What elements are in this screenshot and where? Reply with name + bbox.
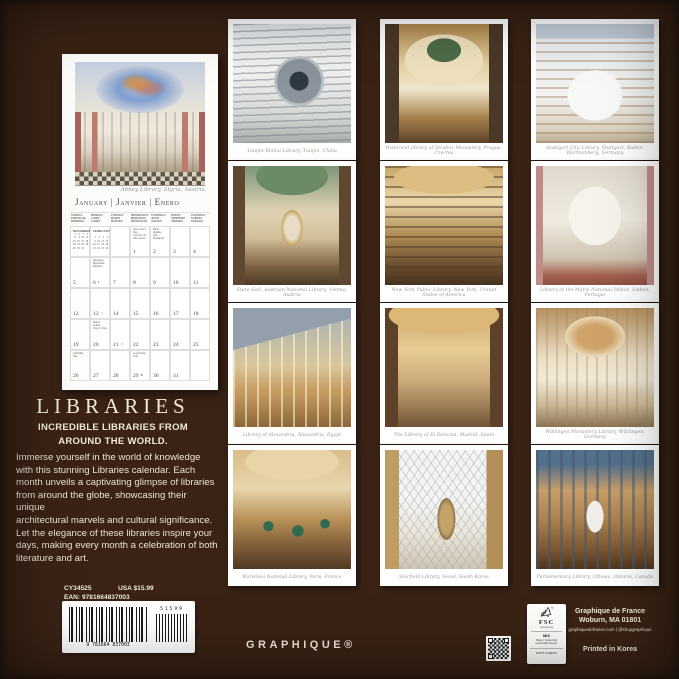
thumbnail-caption: State Hall, Austrian National Library, V… [233, 285, 351, 301]
thumbnail-card: Historical library of Strahov Monastery,… [380, 19, 508, 160]
calendar-cell: 31 [170, 350, 190, 381]
thumbnail-caption: Richelieu National Library, Paris, Franc… [233, 569, 351, 585]
calendar-cell: 28 [110, 350, 130, 381]
calendar-back-cover: Abbey Library, Styria, Austria January |… [0, 0, 679, 679]
calendar-cell: 14 [110, 288, 130, 319]
calendar-cell: 18 [190, 288, 210, 319]
price: USA $15.99 [118, 585, 154, 592]
barcode-supplement-digits: 51599 [156, 607, 188, 612]
calendar-cell: Lunar New Year29● [130, 350, 150, 381]
photo-new-york-public-library [385, 166, 503, 285]
calendar-cell: 21◑ [110, 319, 130, 350]
thumbnail-card: Tianjin Binhai Library, Tianjin, China [228, 19, 356, 160]
thumbnail-card: Library of Alexandria, Alexandria, Egypt [228, 303, 356, 444]
barcode-digits: 9 781664 837003 [66, 643, 150, 648]
thumbnail-caption: Stuttgart City Library, Stuttgart, Baden… [536, 143, 654, 159]
barcode: 9 781664 837003 51599 [62, 601, 195, 653]
qr-finder-icon [504, 638, 509, 643]
photo-el-escorial-library [385, 308, 503, 427]
weekday-header: SUNDAY DIMANCHE DOMINGO [70, 213, 90, 226]
calendar-cell: Martin Luther King Jr. Day20 [90, 319, 110, 350]
thumbnail-card: State Hall, Austrian National Library, V… [228, 161, 356, 302]
calendar-photo-caption: Abbey Library, Styria, Austria [121, 187, 205, 193]
fresco-figures-graphic [114, 72, 166, 99]
thumbnail-card: Richelieu National Library, Paris, Franc… [228, 445, 356, 586]
columns-graphic [75, 112, 205, 173]
thumbnail-card: Library of the Mafra National Palace, Li… [531, 161, 659, 302]
calendar-cell: Epiphany Épiphanie Epifanía6◐ [90, 257, 110, 288]
calendar-cell: 27 [90, 350, 110, 381]
thumbnail-caption: Library of the Mafra National Palace, Li… [536, 285, 654, 301]
weekday-header: SATURDAY SAMEDI SÁBADO [190, 213, 210, 226]
qr-finder-icon [488, 654, 493, 659]
thumbnail-card: Stuttgart City Library, Stuttgart, Baden… [531, 19, 659, 160]
thumbnail-card: New York Public Library, New York, Unite… [380, 161, 508, 302]
calendar-cell: 25 [190, 319, 210, 350]
ean-code: EAN: 9781664837003 [64, 594, 130, 601]
weekday-header: THURSDAY JEUDI JUEVES [150, 213, 170, 226]
calendar-cell: 23 [150, 319, 170, 350]
thumbnail-card: Parliamentary Library, Ottawa, Ontario, … [531, 445, 659, 586]
calendar-grid: SUNDAY DIMANCHE DOMINGO MONDAY LUNDI LUN… [70, 212, 210, 381]
calendar-cell: 12 [70, 288, 90, 319]
photo-mafra-palace-library [536, 166, 654, 285]
photo-parliamentary-library-ottawa [536, 450, 654, 569]
photo-starfield-library [385, 450, 503, 569]
calendar-cell: 22 [130, 319, 150, 350]
calendar-cell: Bank Holiday (UK—Scotland)2 [150, 226, 170, 257]
photo-austrian-national-library [233, 166, 351, 285]
calendar-cell: 5 [70, 257, 90, 288]
calendar-cell: 7 [110, 257, 130, 288]
product-subtitle: INCREDIBLE LIBRARIES FROM AROUND THE WOR… [8, 421, 218, 449]
photo-richelieu-national-library [233, 450, 351, 569]
product-title: LIBRARIES [8, 394, 218, 419]
photo-admont-abbey-library [75, 62, 205, 186]
calendar-cell: 10 [170, 257, 190, 288]
qr-code [486, 636, 511, 661]
calendar-cell: 17 [170, 288, 190, 319]
thumbnail-caption: Parliamentary Library, Ottawa, Ontario, … [536, 569, 654, 585]
calendar-cell: New Year's Day Jour de l'An Año Nuevo1 [130, 226, 150, 257]
weekday-header: FRIDAY VENDREDI VIERNES [170, 213, 190, 226]
product-description: Immerse yourself in the world of knowled… [16, 452, 218, 565]
photo-strahov-monastery-library [385, 24, 503, 143]
brand-wordmark: GRAPHIQUE® [246, 639, 356, 651]
thumbnail-card: Wiblingen Monastery Library, Wiblingen, … [531, 303, 659, 444]
calendar-page-preview: Abbey Library, Styria, Austria January |… [62, 54, 218, 390]
thumbnail-card: The Library of El Escorial, Madrid, Spai… [380, 303, 508, 444]
weekday-header: MONDAY LUNDI LUNES [90, 213, 110, 226]
checkered-floor-graphic [75, 172, 205, 186]
mini-month-grid: 1 2 3 4 5 6 7 8 9 10 11 12 13 14 15 16 1… [93, 233, 108, 250]
photo-bibliotheca-alexandrina [233, 308, 351, 427]
thumbnail-caption: Historical library of Strahov Monastery,… [385, 143, 503, 159]
thumbnail-caption: Library of Alexandria, Alexandria, Egypt [233, 427, 351, 443]
thumbnail-card: Starfield Library, Seoul, South Korea [380, 445, 508, 586]
publisher-address: Woburn, MA 01801 [548, 617, 672, 626]
weekday-header: TUESDAY MARDI MARTES [110, 213, 130, 226]
calendar-cell [110, 226, 130, 257]
thumbnail-caption: Starfield Library, Seoul, South Korea [385, 569, 503, 585]
publisher-website: graphiquedefrance.com | @shopgraphique [548, 627, 672, 632]
photo-tianjin-binhai-library [233, 24, 351, 143]
publisher-block: Graphique de France Woburn, MA 01801 gra… [548, 608, 672, 653]
calendar-cell: 9 [150, 257, 170, 288]
calendar-cell: 16 [150, 288, 170, 319]
calendar-cell: 3 [170, 226, 190, 257]
qr-finder-icon [488, 638, 493, 643]
photo-stuttgart-city-library [536, 24, 654, 143]
calendar-cell: 13○ [90, 288, 110, 319]
calendar-cell: 4 [190, 226, 210, 257]
calendar-cell-mini-february: FEBRUARY 1 2 3 4 5 6 7 8 9 10 11 12 13 1… [90, 226, 110, 257]
publisher-name: Graphique de France [548, 608, 672, 617]
photo-wiblingen-monastery-library [536, 308, 654, 427]
qr-modules [488, 638, 509, 659]
thumbnail-caption: The Library of El Escorial, Madrid, Spai… [385, 427, 503, 443]
thumbnail-caption: Tianjin Binhai Library, Tianjin, China [233, 143, 351, 159]
calendar-cell: Australia Day26 [70, 350, 90, 381]
calendar-cell: 15 [130, 288, 150, 319]
calendar-cell: 19 [70, 319, 90, 350]
thumbnail-caption: Wiblingen Monastery Library, Wiblingen, … [536, 427, 654, 443]
calendar-cell: 24 [170, 319, 190, 350]
calendar-cell: 11 [190, 257, 210, 288]
printed-in: Printed in Korea [548, 646, 672, 653]
thumbnail-caption: New York Public Library, New York, Unite… [385, 285, 503, 301]
barcode-supplement-bars [156, 614, 188, 642]
barcode-bars [69, 607, 147, 642]
sku-code: CY34525 [64, 585, 92, 592]
calendar-cell [190, 350, 210, 381]
calendar-cell: 30 [150, 350, 170, 381]
month-header: January | Janvier | Enero [75, 197, 179, 207]
calendar-cell: 8 [130, 257, 150, 288]
weekday-header: WEDNESDAY MERCREDI MIÉRCOLES [130, 213, 150, 226]
mini-month-grid: 1 2 3 4 5 6 7 8 9 10 11 12 13 14 15 16 1… [73, 233, 88, 250]
calendar-cell-mini-december: DECEMBER 1 2 3 4 5 6 7 8 9 10 11 12 13 1… [70, 226, 90, 257]
